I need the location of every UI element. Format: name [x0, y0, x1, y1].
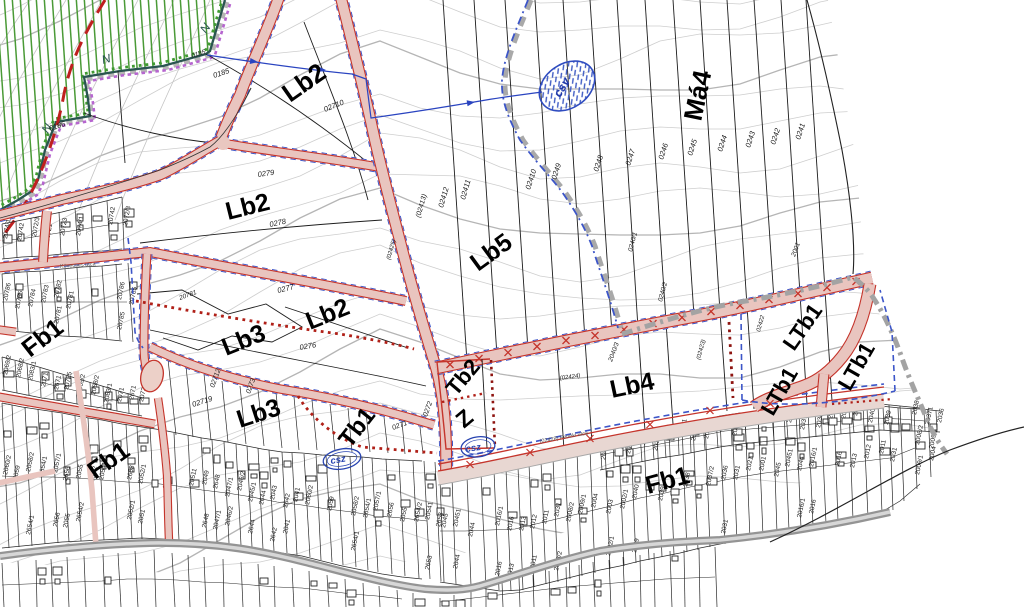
svg-text:csz: csz: [465, 442, 482, 455]
